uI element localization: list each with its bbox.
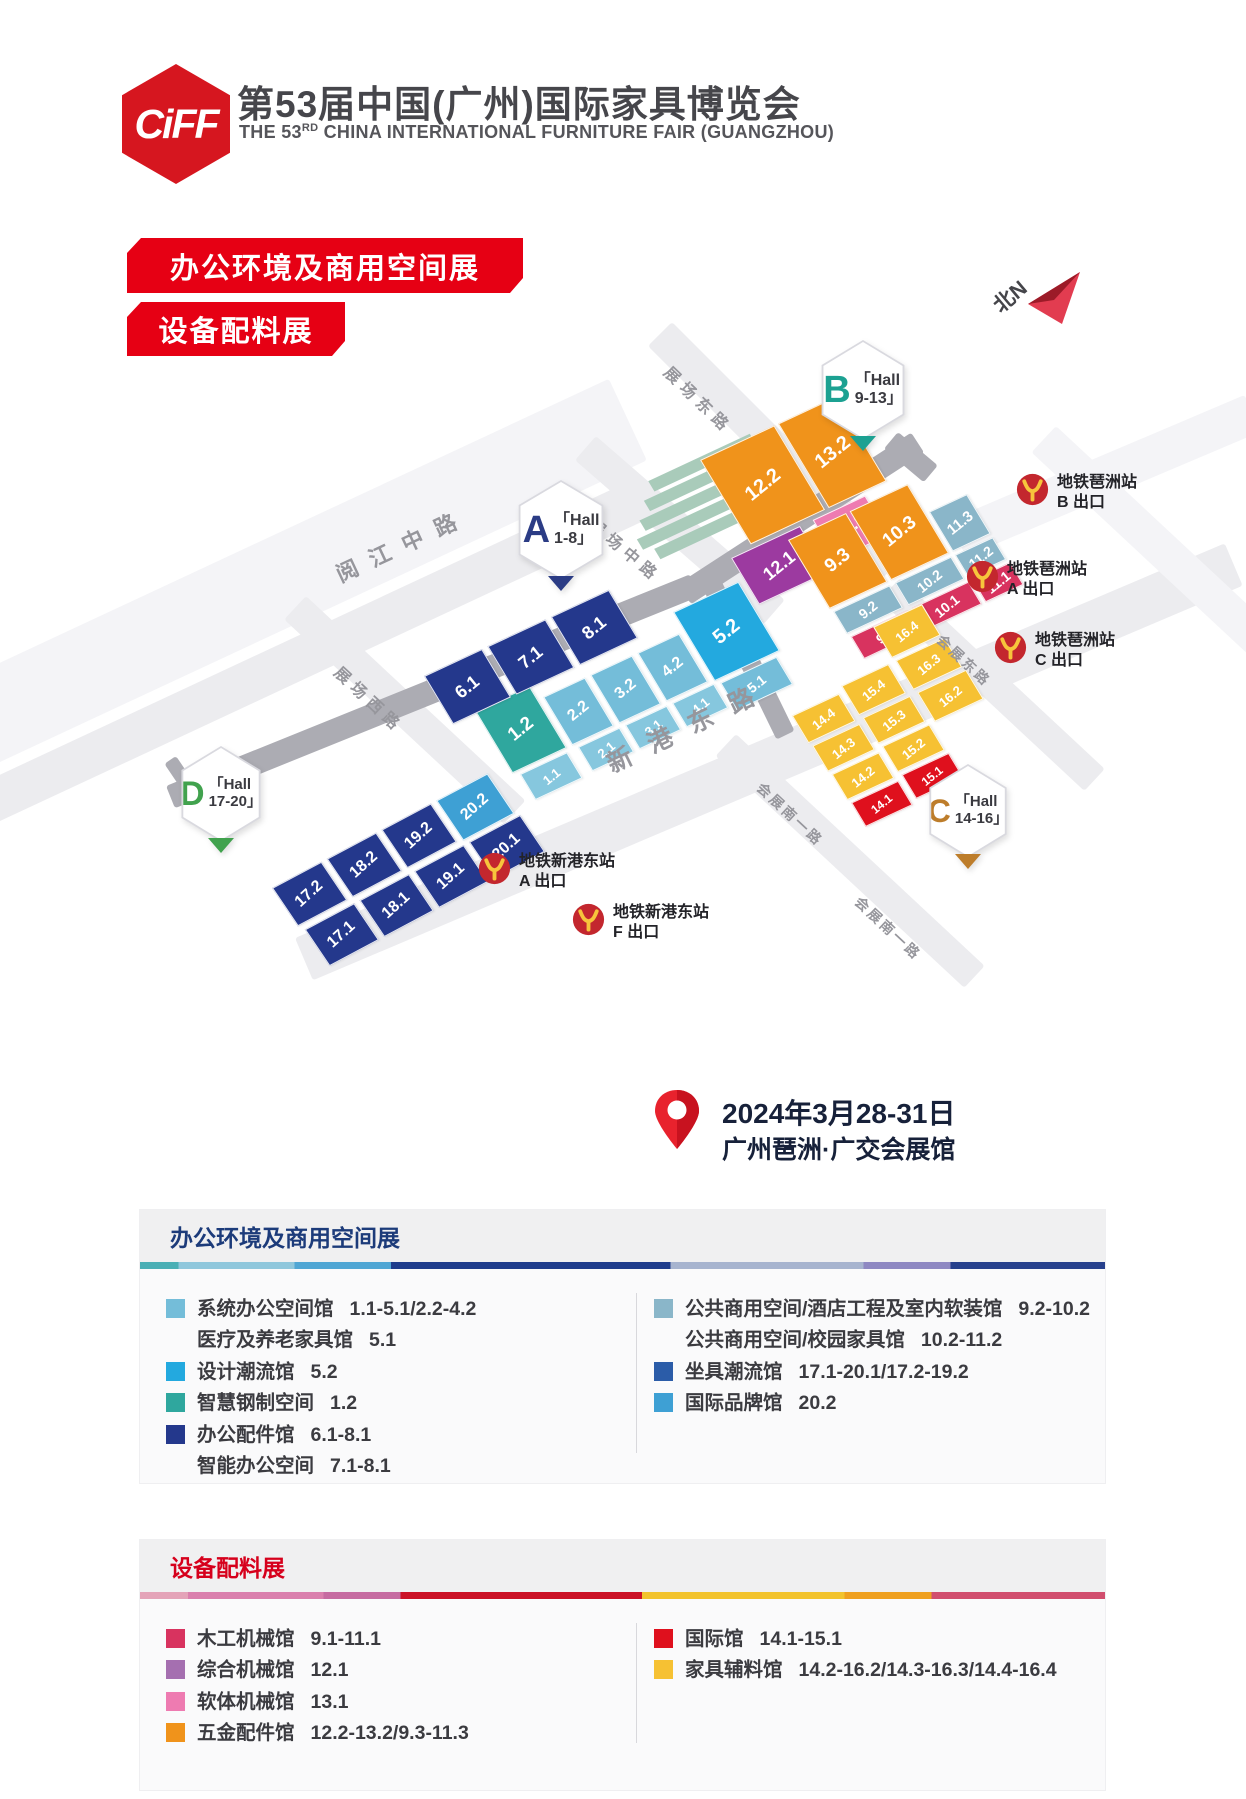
- metro-exit-label: 地铁琶洲站B 出口: [1057, 473, 1137, 513]
- hall-marker-pointer: [548, 576, 574, 591]
- hall-marker-range-line1: 「Hall: [554, 512, 599, 530]
- hall-marker-hexagon-inner: B「Hall9-13」: [820, 342, 906, 438]
- location-pin-icon: [653, 1089, 701, 1151]
- legend-item: 软体机械馆13.1: [166, 1692, 469, 1712]
- hall-marker-d: D「Hall17-20」: [178, 746, 264, 842]
- hall-block-label: 17.1: [324, 918, 359, 952]
- legend-color-swatch: [166, 1299, 185, 1318]
- legend-item-name: 家具辅料馆: [685, 1660, 783, 1680]
- metro-exit: 地铁新港东站F 出口: [572, 903, 709, 943]
- metro-station-name: 地铁琶洲站: [1035, 631, 1115, 651]
- legend-item-range: 13.1: [311, 1692, 349, 1712]
- legend-item: 办公配件馆6.1-8.1: [166, 1425, 476, 1445]
- metro-exit-label: 地铁琶洲站C 出口: [1035, 631, 1115, 671]
- hall-block-label: 15.3: [880, 706, 909, 734]
- hall-marker-a: A「Hall1-8」: [515, 480, 607, 580]
- hall-block-label: 11.3: [943, 507, 976, 538]
- hall-block-label: 20.2: [458, 790, 493, 824]
- hall-block-label: 19.2: [402, 819, 437, 853]
- hall-block-label: 17.2: [292, 877, 327, 911]
- metro-icon: [572, 903, 605, 936]
- legend-item-range: 14.1-15.1: [760, 1629, 842, 1649]
- hall-block-label: 1.2: [504, 713, 538, 747]
- legend-item: 国际馆14.1-15.1: [654, 1629, 1057, 1649]
- hall-block-label: 6.1: [451, 671, 484, 703]
- hall-marker-range: 「Hall9-13」: [855, 372, 903, 408]
- legend-item: 智慧钢制空间1.2: [166, 1393, 476, 1413]
- legend-item-range: 10.2-11.2: [921, 1330, 1002, 1350]
- metro-exit: 地铁新港东站A 出口: [478, 852, 615, 892]
- legend-item: 智能办公空间7.1-8.1: [166, 1456, 476, 1476]
- hall-block-label: 14.3: [829, 734, 858, 762]
- metro-exit: 地铁琶洲站B 出口: [1016, 473, 1137, 513]
- hall-marker-range-line1: 「Hall: [855, 372, 903, 390]
- hall-marker-letter: C: [928, 793, 951, 830]
- hall-block-label: 16.2: [936, 682, 965, 710]
- legend-equipment-body: 木工机械馆9.1-11.1综合机械馆12.1软体机械馆13.1五金配件馆12.2…: [140, 1599, 1105, 1629]
- legend-item: 综合机械馆12.1: [166, 1660, 469, 1680]
- legend-office-body: 系统办公空间馆1.1-5.1/2.2-4.2医疗及养老家具馆5.1设计潮流馆5.…: [140, 1269, 1105, 1299]
- hall-block-label: 8.1: [578, 611, 611, 643]
- hall-block-label: 14.4: [809, 705, 838, 733]
- legend-equipment-title: 设备配料展: [140, 1540, 1105, 1592]
- hall-marker-letter: B: [823, 369, 850, 412]
- hall-marker-range-line2: 17-20」: [209, 794, 262, 811]
- metro-exit-name: F 出口: [613, 923, 709, 943]
- legend-column: 木工机械馆9.1-11.1综合机械馆12.1软体机械馆13.1五金配件馆12.2…: [166, 1629, 469, 1755]
- legend-column: 公共商用空间/酒店工程及室内软装馆9.2-10.2公共商用空间/校园家具馆10.…: [654, 1299, 1090, 1425]
- legend-color-swatch: [166, 1692, 185, 1711]
- legend-item: 木工机械馆9.1-11.1: [166, 1629, 469, 1649]
- hall-marker-range-line2: 1-8」: [554, 530, 599, 548]
- metro-exit-name: B 出口: [1057, 493, 1137, 513]
- legend-item-name: 系统办公空间馆: [197, 1299, 334, 1319]
- hall-block-label: 12.1: [759, 546, 799, 584]
- hall-marker-range: 「Hall14-16」: [955, 794, 1008, 828]
- metro-exit-name: A 出口: [519, 872, 615, 892]
- hall-marker-hexagon-inner: C「Hall14-16」: [928, 766, 1008, 856]
- legend-color-swatch: [166, 1629, 185, 1648]
- legend-item: 家具辅料馆14.2-16.2/14.3-16.3/14.4-16.4: [654, 1660, 1057, 1680]
- hall-block-label: 9.2: [856, 597, 881, 622]
- hall-marker-b: B「Hall9-13」: [818, 340, 908, 440]
- metro-icon: [966, 560, 999, 593]
- hall-block-label: 9.3: [821, 544, 855, 578]
- legend-item-name: 医疗及养老家具馆: [197, 1330, 353, 1350]
- legend-item: 公共商用空间/校园家具馆10.2-11.2: [654, 1330, 1090, 1350]
- metro-icon: [1016, 473, 1049, 506]
- legend-item-name: 办公配件馆: [197, 1425, 295, 1445]
- legend-item-name: 国际馆: [685, 1629, 744, 1649]
- legend-color-swatch: [166, 1425, 185, 1444]
- hall-marker-range-line1: 「Hall: [209, 777, 262, 794]
- hall-marker-range: 「Hall17-20」: [209, 777, 262, 811]
- legend-divider: [636, 1623, 637, 1743]
- hall-marker-pointer: [955, 854, 981, 869]
- metro-station-name: 地铁琶洲站: [1057, 473, 1137, 493]
- metro-exit-name: C 出口: [1035, 651, 1115, 671]
- hall-marker-range-line2: 9-13」: [855, 390, 903, 408]
- legend-item-range: 12.2-13.2/9.3-11.3: [311, 1723, 469, 1743]
- hall-marker-pointer: [850, 436, 876, 451]
- hall-block-label: 5.2: [708, 614, 744, 649]
- metro-icon: [478, 852, 511, 885]
- hall-marker-range-line1: 「Hall: [955, 794, 1008, 811]
- metro-station-name: 地铁新港东站: [519, 852, 615, 872]
- legend-item: 系统办公空间馆1.1-5.1/2.2-4.2: [166, 1299, 476, 1319]
- legend-item-range: 1.2: [330, 1393, 357, 1413]
- hall-block-label: 15.2: [899, 734, 928, 762]
- legend-item-range: 17.1-20.1/17.2-19.2: [799, 1362, 969, 1382]
- metro-exit-name: A 出口: [1007, 580, 1087, 600]
- hall-block-label: 14.2: [848, 762, 877, 790]
- hall-marker-range-line2: 14-16」: [955, 811, 1008, 828]
- legend-item-range: 9.2-10.2: [1018, 1299, 1090, 1319]
- legend-column: 系统办公空间馆1.1-5.1/2.2-4.2医疗及养老家具馆5.1设计潮流馆5.…: [166, 1299, 476, 1488]
- legend-column: 国际馆14.1-15.1家具辅料馆14.2-16.2/14.3-16.3/14.…: [654, 1629, 1057, 1692]
- legend-item: 国际品牌馆20.2: [654, 1393, 1090, 1413]
- compass-arrow-icon: [1022, 268, 1086, 338]
- hall-block-label: 2.2: [564, 697, 593, 725]
- hall-block-label: 3.2: [611, 676, 640, 704]
- event-date: 2024年3月28-31日: [722, 1092, 955, 1132]
- hall-marker-letter: A: [523, 509, 550, 552]
- legend-color-swatch: [654, 1393, 673, 1412]
- hall-block-label: 10.1: [931, 591, 962, 621]
- legend-item-name: 智能办公空间: [197, 1456, 314, 1476]
- legend-item-name: 综合机械馆: [197, 1660, 295, 1680]
- legend-item-name: 公共商用空间/酒店工程及室内软装馆: [685, 1299, 1002, 1319]
- metro-exit: 地铁琶洲站C 出口: [994, 631, 1115, 671]
- legend-item-range: 12.1: [311, 1660, 349, 1680]
- legend-card-equipment: 设备配料展 木工机械馆9.1-11.1综合机械馆12.1软体机械馆13.1五金配…: [140, 1540, 1105, 1790]
- legend-item-name: 五金配件馆: [197, 1723, 295, 1743]
- legend-color-swatch: [166, 1723, 185, 1742]
- legend-color-swatch: [654, 1299, 673, 1318]
- legend-item-range: 14.2-16.2/14.3-16.3/14.4-16.4: [799, 1660, 1057, 1680]
- legend-item-range: 9.1-11.1: [311, 1629, 381, 1649]
- hall-block-label: 15.4: [859, 676, 888, 704]
- hall-block-label: 12.2: [740, 464, 785, 506]
- legend-item-range: 5.1: [369, 1330, 396, 1350]
- legend-item-range: 6.1-8.1: [311, 1425, 372, 1445]
- legend-item: 五金配件馆12.2-13.2/9.3-11.3: [166, 1723, 469, 1743]
- legend-office-gradient-bar: [140, 1262, 1105, 1269]
- hall-marker-range: 「Hall1-8」: [554, 512, 599, 548]
- legend-color-swatch: [166, 1660, 185, 1679]
- legend-item: 医疗及养老家具馆5.1: [166, 1330, 476, 1350]
- legend-color-swatch: [166, 1393, 185, 1412]
- metro-exit: 地铁琶洲站A 出口: [966, 560, 1087, 600]
- metro-exit-label: 地铁琶洲站A 出口: [1007, 560, 1087, 600]
- legend-item: 设计潮流馆5.2: [166, 1362, 476, 1382]
- hall-block-label: 1.1: [539, 765, 562, 788]
- legend-item: 坐具潮流馆17.1-20.1/17.2-19.2: [654, 1362, 1090, 1382]
- legend-item: 公共商用空间/酒店工程及室内软装馆9.2-10.2: [654, 1299, 1090, 1319]
- hall-marker-hexagon-inner: A「Hall1-8」: [517, 482, 605, 578]
- legend-item-name: 设计潮流馆: [197, 1362, 295, 1382]
- hall-block-label: 18.2: [347, 848, 382, 882]
- hall-block-label: 16.4: [892, 617, 921, 645]
- hall-block-label: 18.1: [379, 888, 414, 922]
- metro-exit-label: 地铁新港东站A 出口: [519, 852, 615, 892]
- legend-color-swatch: [654, 1362, 673, 1381]
- hall-block-label: 4.2: [659, 654, 688, 682]
- hall-marker-hexagon-inner: D「Hall17-20」: [180, 748, 262, 840]
- hall-marker-letter: D: [180, 775, 205, 814]
- legend-item-range: 7.1-8.1: [330, 1456, 391, 1476]
- legend-color-swatch: [654, 1629, 673, 1648]
- hall-block-label: 19.1: [434, 859, 469, 893]
- hall-block-label: 10.2: [914, 566, 945, 596]
- legend-item-range: 1.1-5.1/2.2-4.2: [350, 1299, 477, 1319]
- hall-block-label: 10.3: [878, 512, 921, 552]
- legend-item-name: 坐具潮流馆: [685, 1362, 783, 1382]
- metro-station-name: 地铁新港东站: [613, 903, 709, 923]
- legend-color-swatch: [654, 1660, 673, 1679]
- legend-item-range: 20.2: [799, 1393, 837, 1413]
- legend-card-office: 办公环境及商用空间展 系统办公空间馆1.1-5.1/2.2-4.2医疗及养老家具…: [140, 1210, 1105, 1483]
- legend-item-name: 木工机械馆: [197, 1629, 295, 1649]
- metro-icon: [994, 631, 1027, 664]
- hall-marker-pointer: [208, 838, 234, 853]
- metro-station-name: 地铁琶洲站: [1007, 560, 1087, 580]
- legend-color-swatch: [166, 1362, 185, 1381]
- legend-item-range: 5.2: [311, 1362, 338, 1382]
- legend-divider: [636, 1293, 637, 1453]
- event-venue: 广州琶洲·广交会展馆: [722, 1130, 955, 1166]
- legend-item-name: 软体机械馆: [197, 1692, 295, 1712]
- legend-item-name: 公共商用空间/校园家具馆: [685, 1330, 905, 1350]
- legend-office-title: 办公环境及商用空间展: [140, 1210, 1105, 1262]
- hall-block-label: 14.1: [868, 791, 895, 817]
- legend-item-name: 国际品牌馆: [685, 1393, 783, 1413]
- hall-marker-c: C「Hall14-16」: [926, 764, 1010, 858]
- metro-exit-label: 地铁新港东站F 出口: [613, 903, 709, 943]
- legend-item-name: 智慧钢制空间: [197, 1393, 314, 1413]
- hall-block-label: 7.1: [515, 641, 548, 673]
- legend-equipment-gradient-bar: [140, 1592, 1105, 1599]
- hall-block-label: 16.3: [914, 650, 943, 678]
